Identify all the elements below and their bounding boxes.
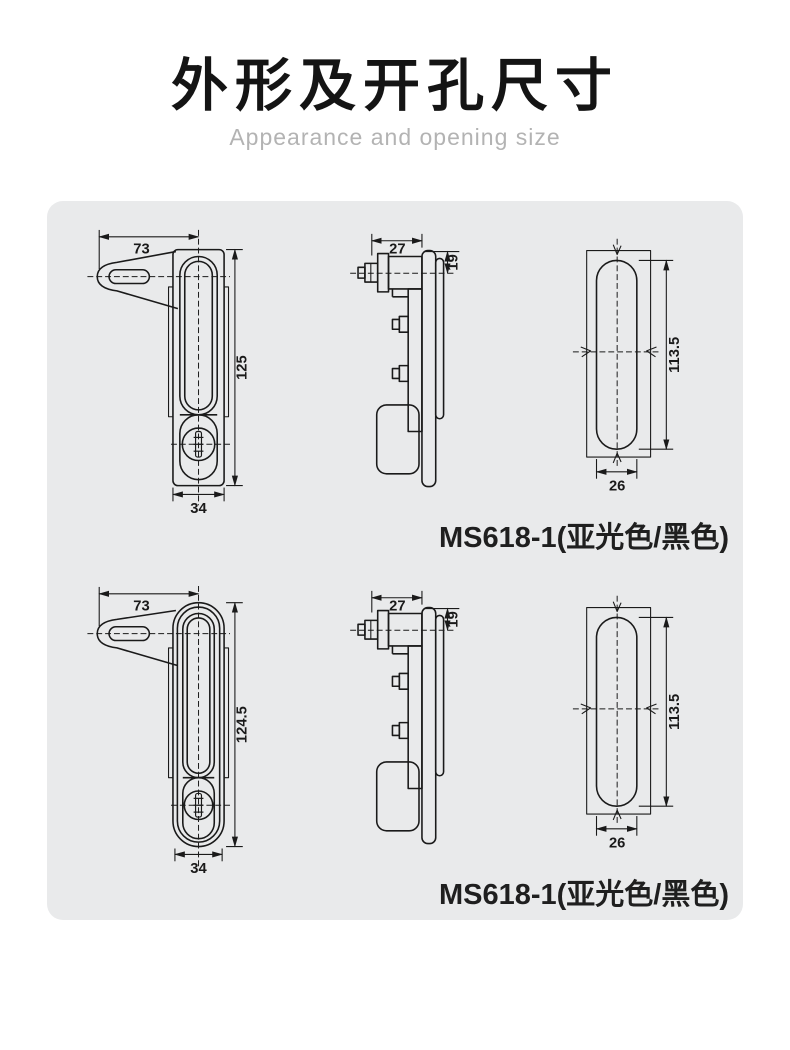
dim-hole-height: 113.5 <box>667 693 683 729</box>
cylinder-profile <box>358 610 422 648</box>
side-view-drawing-1: 27 19 <box>344 226 494 521</box>
dim-hole-width: 26 <box>609 478 625 494</box>
front-view-drawing-1: 73 <box>83 226 258 521</box>
lever-handle <box>97 610 178 665</box>
front-view-drawing-2: 73 <box>83 583 258 878</box>
panel-outline <box>581 601 657 819</box>
dimension-panel: 73 <box>47 201 743 920</box>
cutout-view-drawing-2: 113.5 26 <box>554 583 699 878</box>
product-spec-image: 外形及开孔尺寸 Appearance and opening size 73 <box>0 54 790 1050</box>
protrusion-depth-dimension: 19 <box>424 608 461 630</box>
dim-protrusion-depth: 19 <box>445 611 461 627</box>
drawing-row-1: 73 <box>47 226 743 521</box>
body-height-dimension: 125 <box>226 249 251 485</box>
dim-hole-width: 26 <box>609 835 625 851</box>
case-profile <box>377 645 422 830</box>
panel-outline <box>581 244 657 462</box>
dim-hole-height: 113.5 <box>667 336 683 372</box>
dim-handle-width: 73 <box>133 241 149 257</box>
mount-plate <box>422 607 444 843</box>
dim-body-height: 124.5 <box>235 706 251 743</box>
lever-handle <box>97 251 178 308</box>
protrusion-depth-dimension: 19 <box>424 251 461 273</box>
dim-body-height: 125 <box>235 355 251 380</box>
case-profile <box>377 288 422 473</box>
dim-protrusion-depth: 19 <box>445 254 461 270</box>
mount-plate <box>422 250 444 486</box>
hole-height-dimension: 113.5 <box>639 617 683 806</box>
dim-body-width: 34 <box>190 861 207 877</box>
cutout-view-drawing-1: 113.5 26 <box>554 226 699 521</box>
dim-handle-width: 73 <box>133 598 149 614</box>
dim-body-width: 34 <box>190 501 207 517</box>
page-title: 外形及开孔尺寸 <box>0 54 790 120</box>
body-height-dimension: 124.5 <box>226 602 251 846</box>
product-variant-label-1: MS618-1(亚光色/黑色) <box>47 521 743 555</box>
product-variant-label-2: MS618-1(亚光色/黑色) <box>47 878 743 912</box>
cylinder-profile <box>358 253 422 291</box>
dim-cylinder-width: 27 <box>389 241 405 257</box>
side-view-drawing-2: 27 19 <box>344 583 494 878</box>
centerlines <box>87 229 232 504</box>
drawing-row-2: 73 <box>47 583 743 878</box>
page-subtitle: Appearance and opening size <box>0 124 790 151</box>
hole-height-dimension: 113.5 <box>639 260 683 449</box>
dim-cylinder-width: 27 <box>389 598 405 614</box>
